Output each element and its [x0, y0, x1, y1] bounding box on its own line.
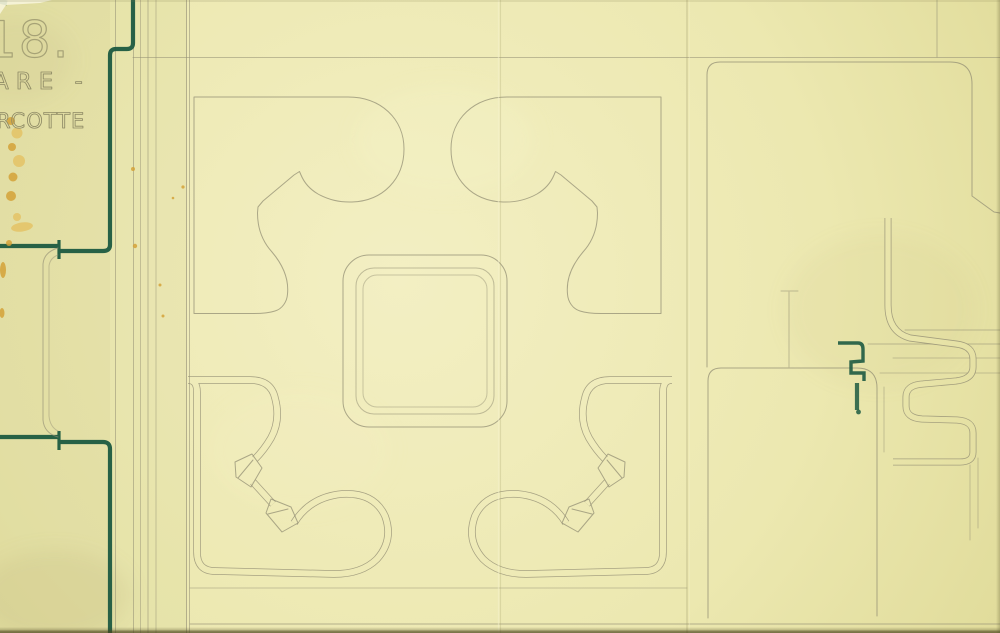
caption-line-1: ARE - — [0, 69, 90, 95]
plan-sheet: 18. ARE - RCOTTE — [0, 0, 1000, 633]
plate-number: 18. — [0, 11, 71, 69]
caption-line-2: RCOTTE — [0, 109, 85, 133]
scanned-drawing: 18. ARE - RCOTTE — [0, 0, 1000, 633]
